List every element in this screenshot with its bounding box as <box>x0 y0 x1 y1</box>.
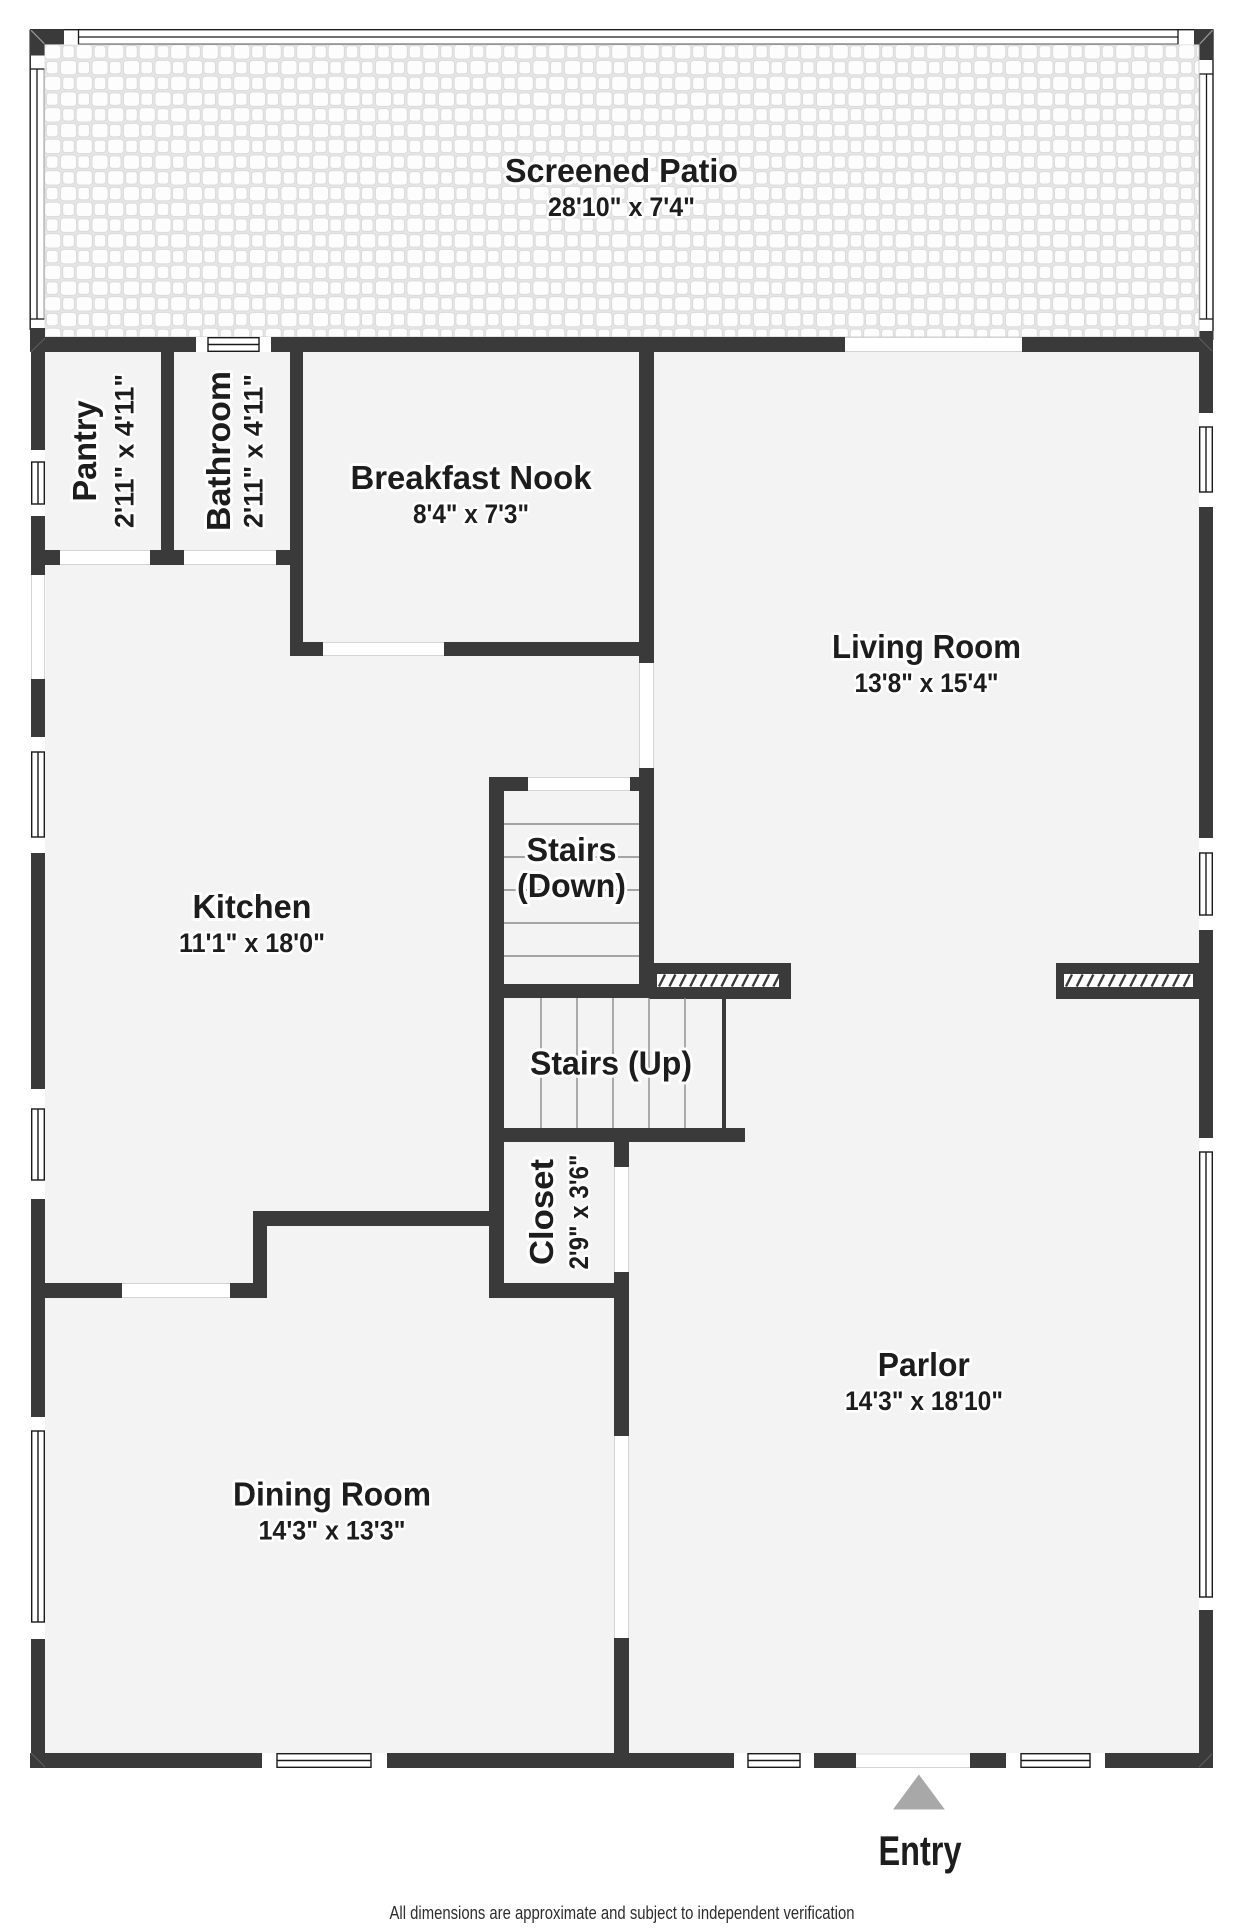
svg-text:Screened Patio: Screened Patio <box>505 152 738 189</box>
svg-text:Closet: Closet <box>523 1159 560 1265</box>
svg-text:13'8" x 15'4": 13'8" x 15'4" <box>855 668 999 698</box>
svg-text:14'3" x 18'10": 14'3" x 18'10" <box>845 1386 1003 1416</box>
svg-text:Stairs: Stairs <box>527 831 617 868</box>
svg-text:11'1" x 18'0": 11'1" x 18'0" <box>179 928 325 958</box>
svg-text:2'9" x 3'6": 2'9" x 3'6" <box>564 1155 594 1270</box>
svg-text:2'11" x 4'11": 2'11" x 4'11" <box>238 374 268 528</box>
svg-text:14'3" x 13'3": 14'3" x 13'3" <box>259 1516 406 1546</box>
svg-text:Pantry: Pantry <box>66 400 103 502</box>
svg-text:(Down): (Down) <box>517 867 626 904</box>
svg-text:Parlor: Parlor <box>878 1346 970 1383</box>
svg-text:2'11" x 4'11": 2'11" x 4'11" <box>109 374 139 528</box>
svg-text:8'4" x 7'3": 8'4" x 7'3" <box>413 499 529 529</box>
svg-text:Kitchen: Kitchen <box>193 888 312 925</box>
svg-text:Dining Room: Dining Room <box>233 1476 431 1513</box>
svg-text:Bathroom: Bathroom <box>200 371 237 531</box>
svg-text:All dimensions are approximate: All dimensions are approximate and subje… <box>390 1903 855 1923</box>
svg-text:Breakfast Nook: Breakfast Nook <box>351 459 593 496</box>
svg-text:Living Room: Living Room <box>832 628 1021 665</box>
svg-text:28'10" x 7'4": 28'10" x 7'4" <box>548 192 695 222</box>
svg-text:Stairs (Up): Stairs (Up) <box>530 1045 692 1082</box>
svg-text:Entry: Entry <box>879 1827 962 1874</box>
